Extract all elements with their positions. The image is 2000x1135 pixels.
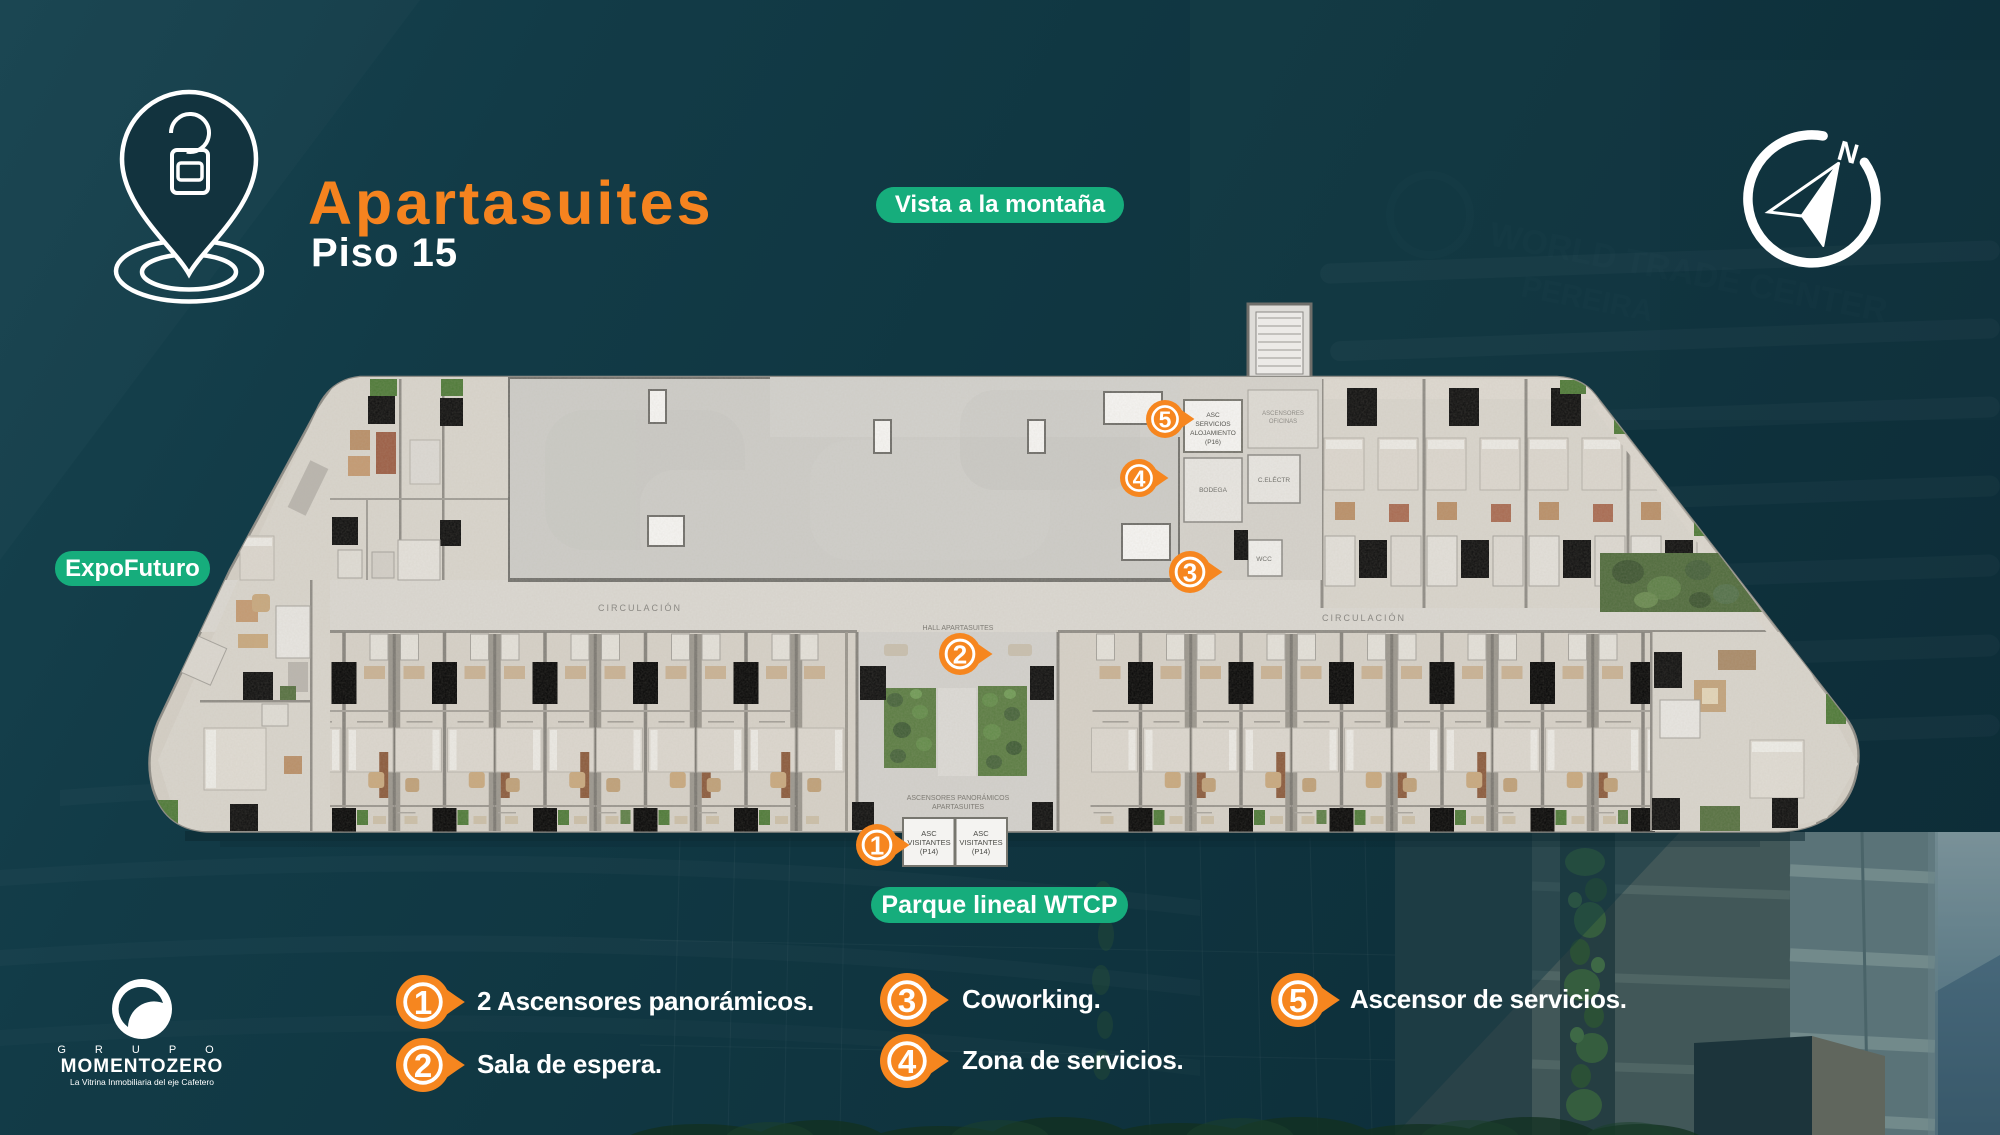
svg-text:MOMENTOZERO: MOMENTOZERO (61, 1056, 224, 1077)
svg-text:VISITANTES: VISITANTES (959, 838, 1002, 847)
svg-text:4: 4 (1133, 465, 1146, 491)
svg-text:CIRCULACIÓN: CIRCULACIÓN (1322, 613, 1406, 623)
svg-text:1: 1 (414, 984, 432, 1021)
svg-text:(P14): (P14) (972, 847, 991, 856)
svg-text:ASC: ASC (973, 829, 989, 838)
svg-text:2: 2 (414, 1047, 432, 1084)
svg-text:4: 4 (898, 1043, 917, 1080)
svg-text:5: 5 (1159, 406, 1172, 432)
svg-text:La Vitrina Inmobiliaria del ej: La Vitrina Inmobiliaria del eje Cafetero (70, 1077, 214, 1087)
svg-text:2: 2 (953, 639, 967, 669)
svg-text:G R U P O: G R U P O (57, 1044, 226, 1056)
svg-text:5: 5 (1289, 982, 1307, 1019)
svg-text:1: 1 (870, 830, 884, 860)
svg-text:3: 3 (898, 982, 916, 1019)
svg-text:3: 3 (1183, 557, 1197, 587)
svg-text:CIRCULACIÓN: CIRCULACIÓN (598, 603, 682, 613)
